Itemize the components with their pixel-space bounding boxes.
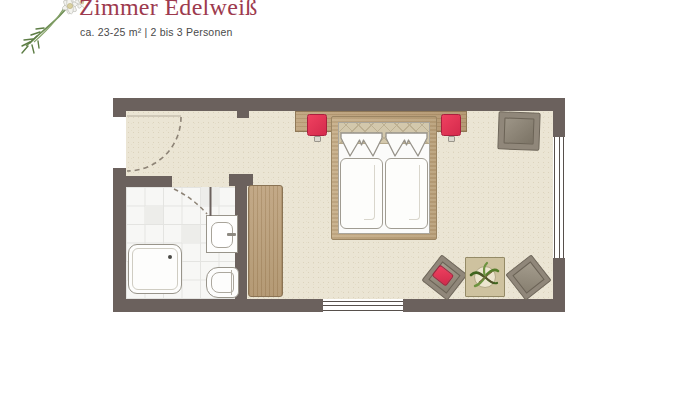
tile-shade: [201, 187, 219, 205]
wall-top: [113, 98, 565, 111]
page-title: Zimmer Edelweiß: [79, 0, 257, 21]
wall-bottom-left: [113, 299, 323, 312]
tile-shade: [182, 225, 200, 243]
wall-stub-top: [237, 111, 249, 118]
page-subtitle: ca. 23-25 m² | 2 bis 3 Personen: [80, 26, 233, 38]
lounge-chair-right-seat: [512, 261, 544, 293]
nightstand-left: [307, 114, 327, 136]
page: Zimmer Edelweiß ca. 23-25 m² | 2 bis 3 P…: [0, 0, 680, 408]
armchair: [497, 111, 540, 150]
floorplan: [113, 98, 565, 312]
armchair-seat: [504, 117, 535, 144]
wall-bottom-right: [403, 299, 565, 312]
window-bottom: [323, 299, 403, 312]
duvet-right: [385, 158, 428, 229]
wall-left-lower: [113, 168, 126, 312]
potted-plant: [467, 259, 503, 295]
washbasin: [206, 215, 238, 253]
pillow-left: [340, 132, 383, 158]
pillow-right: [385, 132, 428, 158]
toilet: [206, 267, 239, 298]
wall-left-upper: [113, 98, 126, 117]
duvet-left: [340, 158, 383, 229]
tile-shade: [145, 206, 163, 224]
shower-drain: [168, 255, 172, 259]
edelweiss-flower-icon: [10, 0, 84, 58]
wall-right-lower: [553, 258, 565, 312]
wardrobe: [248, 185, 283, 297]
window-right: [553, 137, 565, 258]
shower: [128, 244, 182, 294]
wall-bathroom-left: [126, 176, 172, 187]
nightstand-left-leg: [314, 136, 321, 142]
faucet: [227, 233, 236, 236]
nightstand-right-leg: [448, 136, 455, 142]
nightstand-right: [441, 114, 461, 136]
wall-right-upper: [553, 98, 565, 137]
